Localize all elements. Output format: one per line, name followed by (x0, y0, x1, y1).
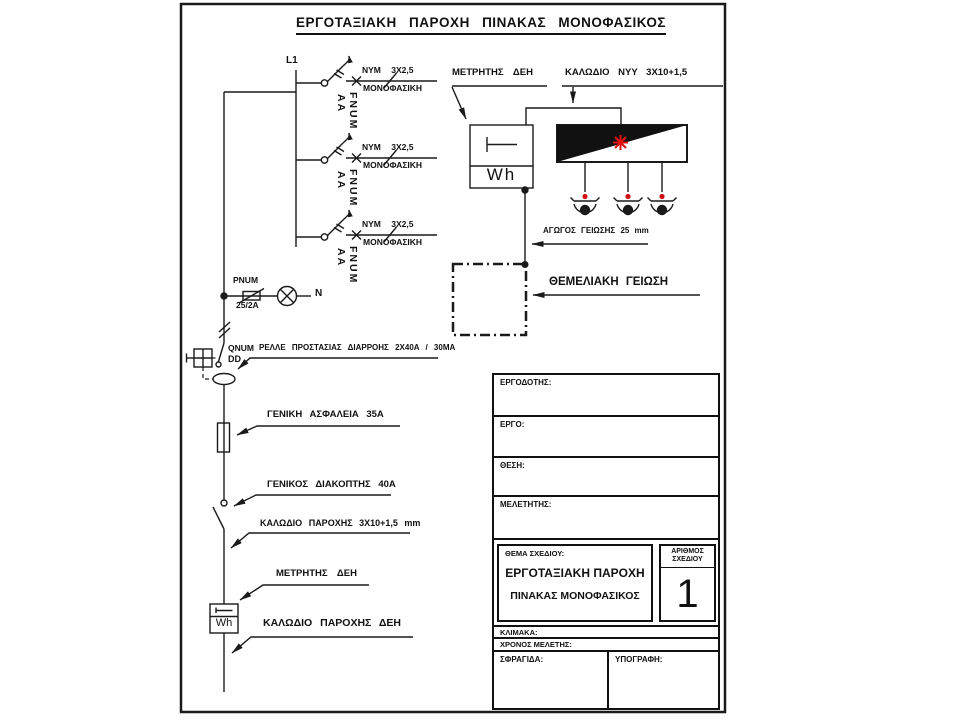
branch-poles-label: AA (334, 171, 346, 190)
site-panel-symbol (557, 125, 687, 162)
designer-label: ΜΕΛΕΤΗΤΗΣ: (500, 500, 551, 509)
site-meter-label: ΜΕΤΡΗΤΗΣ ΔΕΗ (452, 68, 533, 78)
title-block-row-designer: ΜΕΛΕΤΗΤΗΣ: (494, 497, 718, 540)
pilot-lamp-circuit (221, 287, 311, 306)
main-switch-label: ΓΕΝΙΚΟΣ ΔΙΑΚΟΠΤΗΣ 40A (267, 480, 396, 490)
foundation-ground-symbol (453, 244, 700, 335)
branch-cable-label: NYM 3X2,5 (362, 220, 413, 229)
drawing-sheet: ΕΡΓΟΤΑΞΙΑΚΗ ΠΑΡΟΧΗ ΠΙΝΑΚΑΣ ΜΟΝΟΦΑΣΙΚΟΣ L… (0, 0, 960, 720)
title-block-row-project: ΕΡΓΟ: (494, 417, 718, 458)
employer-label: ΕΡΓΟΔΟΤΗΣ: (500, 378, 551, 387)
branch-load-label: ΜΟΝΟΦΑΣΙΚΗ (363, 84, 422, 93)
subject-label: ΘΕΜΑ ΣΧΕΔΙΟΥ: (505, 549, 564, 558)
title-block-row-location: ΘΕΣΗ: (494, 458, 718, 497)
pilot-fuse-rating: 25/2A (236, 301, 259, 310)
number-label-line1: ΑΡΙΘΜΟΣ (671, 548, 704, 555)
supply-cable-label: ΚΑΛΩΔΙΟ ΠΑΡΟΧΗΣ 3X10+1,5 mm (260, 519, 420, 529)
number-label-line2: ΣΧΕΔΙΟΥ (672, 556, 702, 563)
main-fuse-symbol (218, 423, 401, 452)
subject-box: ΘΕΜΑ ΣΧΕΔΙΟΥ: ΕΡΓΟΤΑΞΙΑΚΗ ΠΑΡΟΧΗ ΠΙΝΑΚΑΣ… (497, 544, 653, 622)
drawing-number: 1 (661, 568, 714, 620)
branch-device-label: FNUM (346, 169, 358, 207)
ground-conductor-label: ΑΓΩΓΟΣ ΓΕΙΩΣΗΣ 25 mm (543, 227, 649, 236)
branch-poles-label: AA (334, 248, 346, 267)
scale-label: ΚΛΙΜΑΚΑ: (500, 628, 538, 637)
utility-cable-label: ΚΑΛΩΔΙΟ ΠΑΡΟΧΗΣ ΔΕΗ (263, 618, 401, 630)
title-block-row-scale: ΚΛΙΜΑΚΑ: (494, 627, 718, 639)
title-block: ΕΡΓΟΔΟΤΗΣ: ΕΡΓΟ: ΘΕΣΗ: ΜΕΛΕΤΗΤΗΣ: ΘΕΜΑ Σ… (492, 373, 720, 710)
utility-meter-label: ΜΕΤΡΗΤΗΣ ΔΕΗ (276, 569, 357, 579)
neutral-label: N (315, 288, 322, 299)
rcd-name: QNUM (228, 344, 254, 353)
pilot-fuse-name: PNUM (233, 276, 258, 285)
signature-cell: ΥΠΟΓΡΑΦΗ: (609, 652, 718, 708)
branch-load-label: ΜΟΝΟΦΑΣΙΚΗ (363, 161, 422, 170)
foundation-ground-label: ΘΕΜΕΛΙΑΚΗ ΓΕΙΩΣΗ (549, 276, 668, 289)
rcd-poles: DD (228, 355, 241, 365)
drawing-title: ΕΡΓΟΤΑΞΙΑΚΗ ΠΑΡΟΧΗ ΠΙΝΑΚΑΣ ΜΟΝΟΦΑΣΙΚΟΣ (296, 16, 666, 35)
utility-meter-unit: Wh (210, 617, 238, 629)
branch-device-label: FNUM (346, 246, 358, 284)
phase-label: L1 (286, 55, 298, 66)
branch-cable-label: NYM 3X2,5 (362, 143, 413, 152)
main-switch-symbol (213, 495, 410, 604)
branch-load-label: ΜΟΝΟΦΑΣΙΚΗ (363, 238, 422, 247)
title-block-row-study-time: ΧΡΟΝΟΣ ΜΕΛΕΤΗΣ: (494, 639, 718, 652)
title-block-row-stamp-signature: ΣΦΡΑΓΙΔΑ: ΥΠΟΓΡΑΦΗ: (494, 652, 718, 708)
study-time-label: ΧΡΟΝΟΣ ΜΕΛΕΤΗΣ: (500, 640, 572, 649)
branch-cable-label: NYM 3X2,5 (362, 66, 413, 75)
main-fuse-label: ΓΕΝΙΚΗ ΑΣΦΑΛΕΙΑ 35A (267, 410, 384, 420)
utility-meter-symbol (210, 585, 413, 692)
distribution-bus (224, 70, 296, 343)
site-cable-label: ΚΑΛΩΔΙΟ NYY 3X10+1,5 (565, 68, 687, 78)
branch-poles-label: AA (334, 94, 346, 113)
location-label: ΘΕΣΗ: (500, 461, 525, 470)
stamp-cell: ΣΦΡΑΓΙΔΑ: (494, 652, 609, 708)
stamp-label: ΣΦΡΑΓΙΔΑ: (500, 655, 543, 664)
site-meter-unit: Wh (470, 166, 533, 185)
drawing-number-box: ΑΡΙΘΜΟΣ ΣΧΕΔΙΟΥ 1 (659, 544, 716, 622)
panel-star-icon (613, 135, 628, 150)
title-block-row-subject: ΘΕΜΑ ΣΧΕΔΙΟΥ: ΕΡΓΟΤΑΞΙΑΚΗ ΠΑΡΟΧΗ ΠΙΝΑΚΑΣ… (494, 540, 718, 627)
socket-symbol (648, 162, 677, 215)
branch-device-label: FNUM (346, 92, 358, 130)
socket-symbol (571, 162, 600, 215)
socket-symbol (614, 162, 643, 215)
subject-line1: ΕΡΓΟΤΑΞΙΑΚΗ ΠΑΡΟΧΗ (499, 567, 651, 580)
rcd-note: ΡΕΛΛΕ ΠΡΟΣΤΑΣΙΑΣ ΔΙΑΡΡΟΗΣ 2X40A / 30MA (259, 344, 455, 353)
subject-line2: ΠΙΝΑΚΑΣ ΜΟΝΟΦΑΣΙΚΟΣ (499, 591, 651, 603)
title-block-row-employer: ΕΡΓΟΔΟΤΗΣ: (494, 375, 718, 417)
drawing-number-header: ΑΡΙΘΜΟΣ ΣΧΕΔΙΟΥ (661, 546, 714, 568)
schematic-linework (0, 0, 960, 720)
signature-label: ΥΠΟΓΡΑΦΗ: (615, 655, 662, 664)
socket-outlet-symbols (571, 162, 677, 215)
project-label: ΕΡΓΟ: (500, 420, 524, 429)
